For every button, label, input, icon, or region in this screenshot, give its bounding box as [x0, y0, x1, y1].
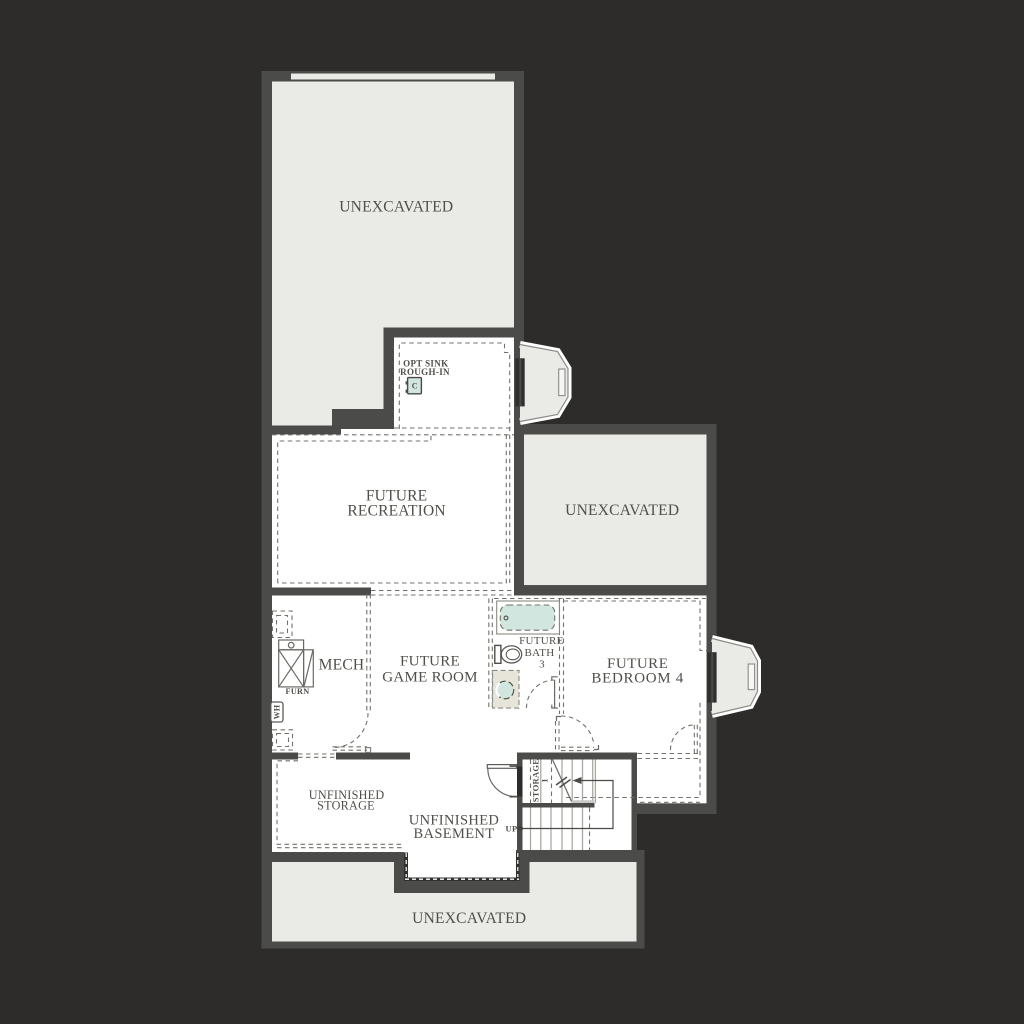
svg-text:FUTURE: FUTURE [519, 635, 564, 647]
svg-text:RECREATION: RECREATION [347, 502, 445, 519]
svg-text:STORAGE: STORAGE [317, 799, 375, 813]
svg-text:UNEXCAVATED: UNEXCAVATED [412, 910, 526, 927]
svg-text:UNEXCAVATED: UNEXCAVATED [565, 502, 679, 519]
svg-text:FURN: FURN [286, 687, 310, 696]
svg-text:C: C [412, 381, 418, 390]
svg-text:MECH: MECH [319, 657, 365, 674]
svg-text:UP: UP [506, 823, 518, 833]
svg-text:UNEXCAVATED: UNEXCAVATED [339, 198, 453, 215]
svg-text:ROUGH-IN: ROUGH-IN [400, 367, 450, 377]
svg-text:GAME ROOM: GAME ROOM [382, 669, 477, 685]
svg-text:FUTURE: FUTURE [400, 653, 460, 669]
svg-text:1: 1 [540, 778, 550, 783]
svg-text:BASEMENT: BASEMENT [414, 826, 495, 842]
svg-text:BEDROOM 4: BEDROOM 4 [591, 670, 684, 686]
svg-text:BATH: BATH [525, 647, 555, 659]
svg-text:3: 3 [539, 658, 545, 670]
svg-text:WH: WH [273, 704, 282, 719]
